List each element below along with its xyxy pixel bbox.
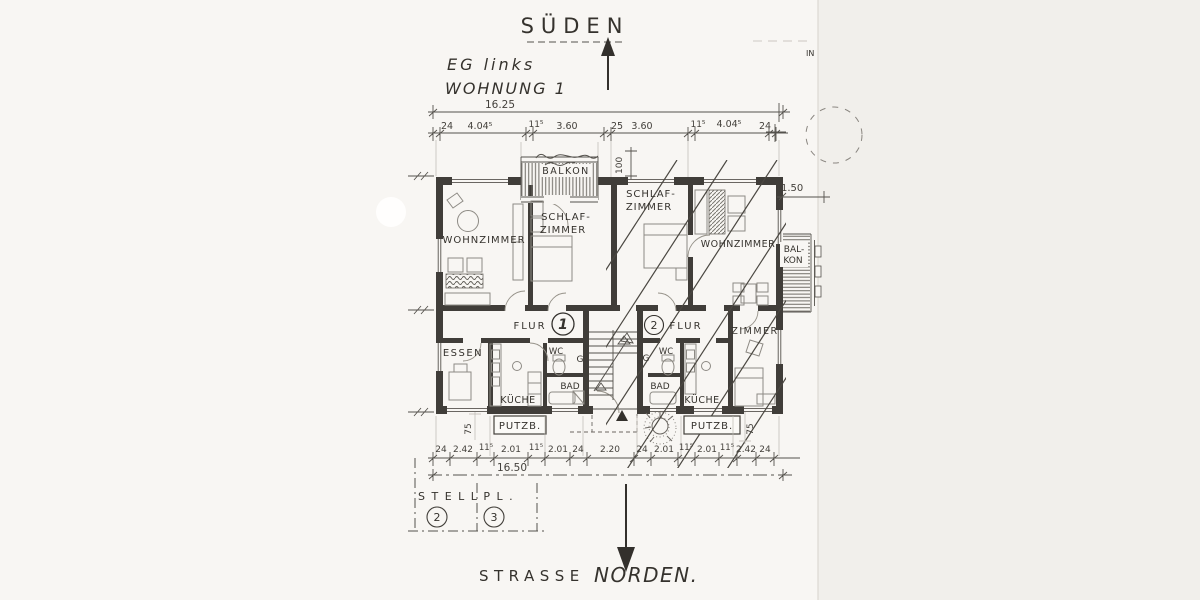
wc-left: WC — [549, 347, 563, 357]
wc-right: WC — [659, 347, 673, 357]
unit-note: WOHNUNG 1 — [445, 79, 567, 98]
room-right: ZIMMER — [731, 326, 778, 337]
dim-top-seg: 3.60 — [631, 121, 652, 132]
bath-right-label: BAD — [650, 382, 669, 392]
dim-bottom-total: 16.50 — [497, 462, 527, 474]
dim-bot-seg: 2.42 — [736, 445, 756, 455]
dim-bot-seg: 11⁵ — [479, 443, 493, 453]
dim-bot-seg: 24 — [435, 445, 447, 455]
room-living-right: WOHNZIMMER — [701, 239, 775, 250]
balcony-right-label: BAL- — [784, 245, 804, 255]
dim-bot-seg: 24 — [572, 445, 584, 455]
dim-top-seg: 25 — [611, 121, 623, 132]
room-bed-left: SCHLAF- — [541, 212, 591, 223]
dim-bot-seg: 11⁵ — [679, 443, 693, 453]
wardrobe-right: G — [643, 354, 650, 364]
dim-bot-seg: 24 — [636, 445, 648, 455]
dim-bot-seg: 2.42 — [453, 445, 473, 455]
dim-bot-seg: 2.01 — [697, 445, 717, 455]
dim-top-seg: 24 — [759, 121, 771, 132]
edge-note: IN — [806, 49, 814, 58]
dim-top-seg: 3.60 — [556, 121, 577, 132]
dim-balcony-height: 100 — [615, 157, 625, 174]
dim-bot-seg: 2.01 — [501, 445, 521, 455]
dim-top-seg: 24 — [441, 121, 453, 132]
putz-right-label: PUTZB. — [691, 421, 733, 432]
balcony-label: BALKON — [542, 166, 590, 177]
page-background — [0, 0, 1200, 600]
dim-bot-seg: 2.01 — [654, 445, 674, 455]
kitchen-left: KÜCHE — [500, 395, 535, 406]
dim-right-offset: 1.50 — [781, 183, 803, 194]
south-label: SÜDEN — [521, 13, 630, 38]
putz-left-dim: 75 — [464, 423, 474, 434]
dim-top-seg: 11⁵ — [690, 120, 705, 130]
dim-bot-seg: 2.20 — [600, 445, 620, 455]
dim-bot-seg: 11⁵ — [529, 443, 543, 453]
balcony-right-label: KON — [783, 256, 802, 266]
kitchen-right: KÜCHE — [684, 395, 719, 406]
unit-2-number: 2 — [651, 319, 658, 332]
floorplan-scan-page: SÜDEN EG links WOHNUNG 1 IN 16.25 24 4.0… — [0, 0, 1200, 600]
hall-right: FLUR — [669, 321, 702, 332]
balcony-right: BAL- KON — [780, 234, 821, 312]
putz-right-dim: 75 — [746, 423, 756, 434]
bath-left-label: BAD — [560, 382, 579, 392]
stall-2-number: 2 — [434, 511, 441, 524]
room-living-left: WOHNZIMMER — [442, 235, 525, 246]
room-dining: ESSEN — [443, 348, 483, 359]
floor-note: EG links — [447, 55, 535, 74]
dim-bot-seg: 24 — [759, 445, 771, 455]
room-bed-left: ZIMMER — [540, 225, 586, 236]
street-label: STRASSE — [479, 567, 585, 585]
dim-top-seg: 4.04⁵ — [717, 119, 742, 130]
parking-label: STELLPL. — [418, 490, 519, 503]
dim-top-total: 16.25 — [485, 99, 515, 111]
unit-1-number: 1 — [558, 317, 568, 333]
room-bed-right: SCHLAF- — [626, 189, 676, 200]
dim-top-seg: 4.04⁵ — [468, 121, 493, 132]
dim-bot-seg: 2.01 — [548, 445, 568, 455]
balcony-top: BALKON — [521, 154, 598, 204]
dim-top-seg: 11⁵ — [528, 120, 543, 130]
stall-3-number: 3 — [491, 511, 498, 524]
wardrobe-left: G — [577, 355, 584, 365]
rug — [446, 274, 483, 288]
hall-left: FLUR — [513, 321, 546, 332]
paper-blemish — [376, 197, 406, 227]
putz-left-label: PUTZB. — [499, 421, 541, 432]
dim-bot-seg: 11⁵ — [720, 443, 734, 453]
north-label: NORDEN. — [594, 563, 698, 587]
room-bed-right: ZIMMER — [626, 202, 672, 213]
